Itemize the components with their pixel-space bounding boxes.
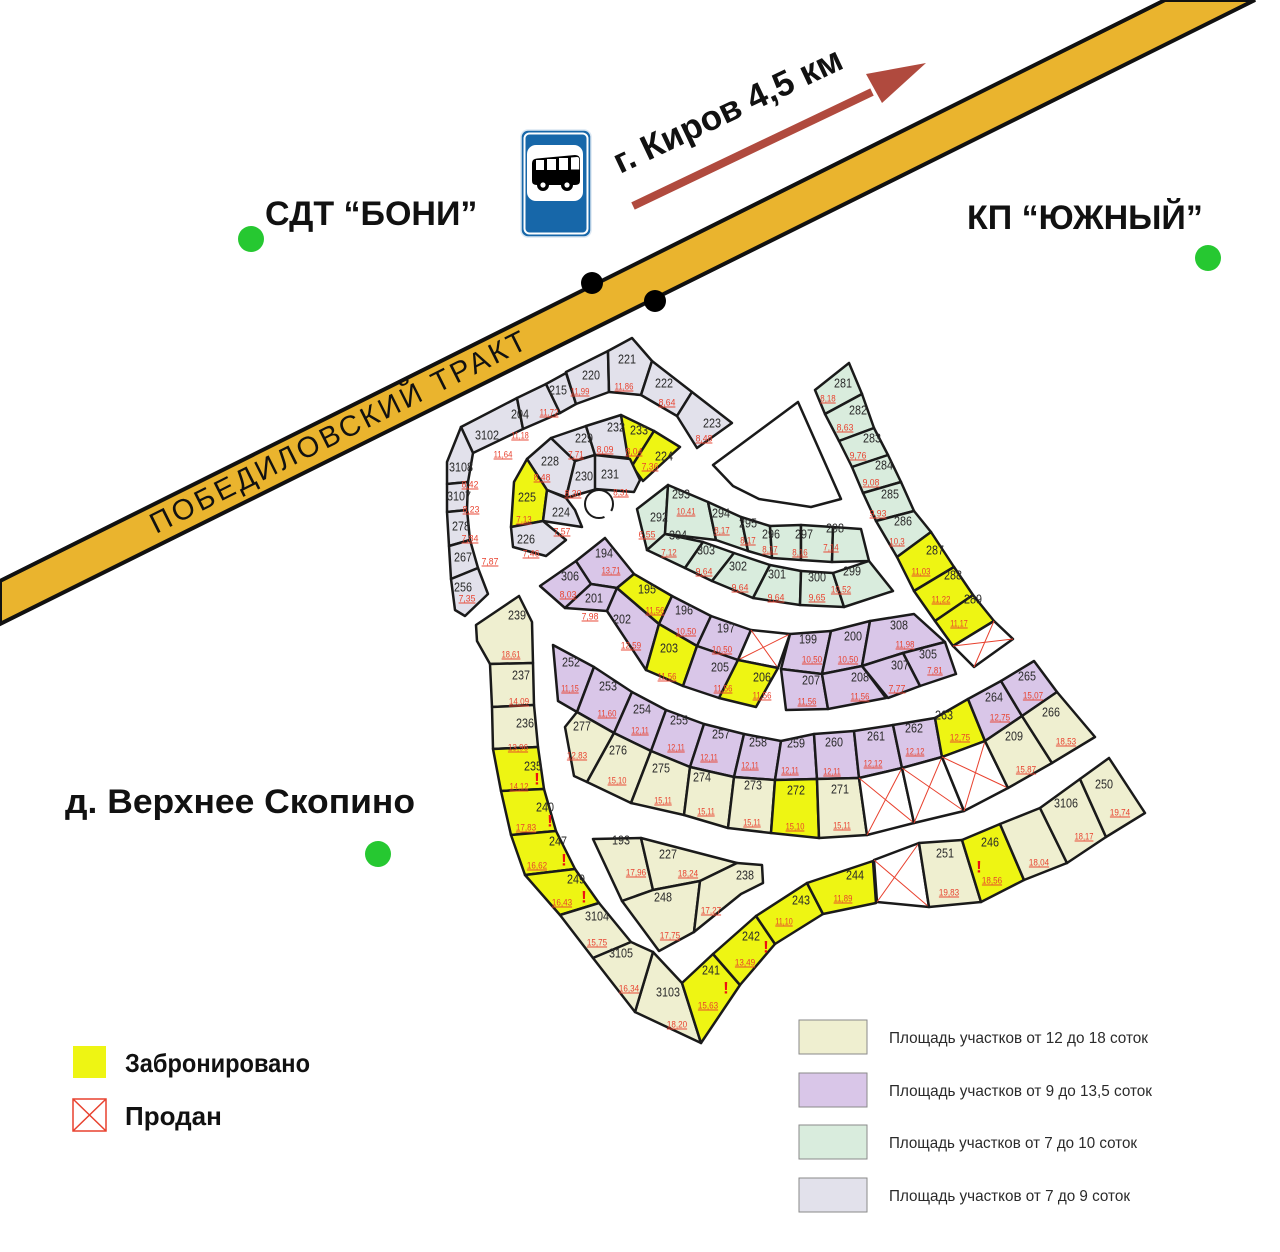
svg-text:12,12: 12,12 xyxy=(906,747,925,758)
svg-text:11,99: 11,99 xyxy=(571,387,590,398)
svg-text:239: 239 xyxy=(508,608,526,622)
svg-text:276: 276 xyxy=(609,743,627,757)
svg-text:204: 204 xyxy=(511,407,529,421)
svg-text:11,03: 11,03 xyxy=(912,567,931,578)
svg-text:18,53: 18,53 xyxy=(1056,737,1076,748)
svg-text:7,46: 7,46 xyxy=(523,549,540,560)
svg-text:Площадь участков от 9 до 13,5: Площадь участков от 9 до 13,5 соток xyxy=(889,1083,1153,1100)
svg-text:271: 271 xyxy=(831,782,849,796)
svg-text:11,56: 11,56 xyxy=(714,684,733,695)
svg-text:263: 263 xyxy=(935,708,953,722)
svg-text:12,59: 12,59 xyxy=(621,641,641,652)
svg-text:11,22: 11,22 xyxy=(932,595,951,606)
svg-text:12,11: 12,11 xyxy=(631,726,648,737)
svg-text:15,11: 15,11 xyxy=(697,807,714,818)
svg-text:282: 282 xyxy=(849,403,867,417)
svg-text:7,81: 7,81 xyxy=(927,666,942,677)
svg-text:8,48: 8,48 xyxy=(534,473,551,484)
svg-text:308: 308 xyxy=(890,618,908,632)
svg-text:15,11: 15,11 xyxy=(743,818,760,829)
svg-text:253: 253 xyxy=(599,679,617,693)
svg-text:!: ! xyxy=(534,769,540,788)
svg-text:244: 244 xyxy=(846,868,864,882)
svg-text:17,83: 17,83 xyxy=(516,823,536,834)
svg-text:200: 200 xyxy=(844,629,862,643)
svg-text:275: 275 xyxy=(652,761,670,775)
svg-text:18,04: 18,04 xyxy=(1029,858,1049,869)
svg-text:9,08: 9,08 xyxy=(863,478,880,489)
svg-text:8,03: 8,03 xyxy=(560,590,577,601)
svg-text:10,50: 10,50 xyxy=(712,645,732,656)
svg-text:18,56: 18,56 xyxy=(982,876,1002,887)
svg-text:16,34: 16,34 xyxy=(619,984,639,995)
svg-text:203: 203 xyxy=(660,641,678,655)
svg-text:7,84: 7,84 xyxy=(462,534,479,545)
svg-text:11,17: 11,17 xyxy=(950,619,967,630)
svg-text:9,76: 9,76 xyxy=(850,451,867,462)
svg-text:259: 259 xyxy=(787,736,805,750)
svg-text:256: 256 xyxy=(454,580,472,594)
svg-text:196: 196 xyxy=(675,603,693,617)
svg-text:231: 231 xyxy=(601,467,619,481)
svg-text:16,62: 16,62 xyxy=(527,861,547,872)
svg-text:17,75: 17,75 xyxy=(660,931,680,942)
svg-text:13,49: 13,49 xyxy=(735,958,755,969)
svg-text:193: 193 xyxy=(612,833,630,847)
svg-text:13,71: 13,71 xyxy=(602,566,621,577)
svg-text:10,50: 10,50 xyxy=(676,627,696,638)
svg-text:272: 272 xyxy=(787,783,805,797)
svg-text:255: 255 xyxy=(670,713,688,727)
svg-text:11,86: 11,86 xyxy=(615,382,634,393)
svg-text:11,98: 11,98 xyxy=(896,640,915,651)
svg-text:12,11: 12,11 xyxy=(667,743,684,754)
svg-text:11,10: 11,10 xyxy=(775,917,792,928)
svg-text:252: 252 xyxy=(562,655,580,669)
svg-text:14,09: 14,09 xyxy=(509,697,529,708)
svg-text:250: 250 xyxy=(1095,777,1113,791)
svg-text:261: 261 xyxy=(867,729,885,743)
svg-text:284: 284 xyxy=(875,458,893,472)
svg-text:246: 246 xyxy=(981,835,999,849)
svg-text:11,56: 11,56 xyxy=(851,692,870,703)
svg-text:249: 249 xyxy=(567,872,585,886)
svg-text:227: 227 xyxy=(659,847,677,861)
svg-text:11,56: 11,56 xyxy=(658,672,677,683)
svg-text:273: 273 xyxy=(744,778,762,792)
svg-text:11,15: 11,15 xyxy=(561,684,578,695)
svg-text:287: 287 xyxy=(926,543,944,557)
svg-text:241: 241 xyxy=(702,963,720,977)
svg-text:11,56: 11,56 xyxy=(798,697,817,708)
svg-text:12,11: 12,11 xyxy=(741,761,758,772)
svg-text:226: 226 xyxy=(517,532,535,546)
svg-text:3106: 3106 xyxy=(1054,796,1078,810)
svg-text:266: 266 xyxy=(1042,705,1060,719)
svg-text:18,61: 18,61 xyxy=(502,650,521,661)
svg-text:Площадь участков от 12 до 18 с: Площадь участков от 12 до 18 соток xyxy=(889,1030,1149,1047)
svg-text:10,3: 10,3 xyxy=(889,537,904,548)
svg-text:11,64: 11,64 xyxy=(494,450,513,461)
svg-text:15,11: 15,11 xyxy=(833,821,850,832)
svg-text:215: 215 xyxy=(549,383,567,397)
svg-text:7,35: 7,35 xyxy=(459,594,476,605)
svg-text:305: 305 xyxy=(919,647,937,661)
svg-text:8,09: 8,09 xyxy=(597,445,614,456)
svg-text:10,41: 10,41 xyxy=(677,507,696,518)
svg-text:304: 304 xyxy=(669,528,687,542)
svg-text:222: 222 xyxy=(655,376,673,390)
svg-text:199: 199 xyxy=(799,632,817,646)
svg-text:17,96: 17,96 xyxy=(626,868,646,879)
svg-text:Продан: Продан xyxy=(125,1101,222,1131)
svg-text:10,50: 10,50 xyxy=(802,655,822,666)
svg-text:254: 254 xyxy=(633,702,651,716)
svg-text:277: 277 xyxy=(573,719,591,733)
svg-text:225: 225 xyxy=(518,490,536,504)
svg-text:238: 238 xyxy=(736,868,754,882)
svg-text:9,64: 9,64 xyxy=(696,567,713,578)
svg-text:205: 205 xyxy=(711,660,729,674)
svg-text:257: 257 xyxy=(712,727,730,741)
svg-text:3108: 3108 xyxy=(449,460,473,474)
svg-text:12,12: 12,12 xyxy=(864,759,883,770)
svg-text:18,17: 18,17 xyxy=(1075,832,1094,843)
svg-text:7,87: 7,87 xyxy=(482,557,499,568)
svg-text:8,31: 8,31 xyxy=(613,488,628,499)
svg-text:8,17: 8,17 xyxy=(714,526,729,537)
svg-text:248: 248 xyxy=(654,890,672,904)
svg-text:15,10: 15,10 xyxy=(786,822,805,833)
svg-text:274: 274 xyxy=(693,770,711,784)
svg-text:260: 260 xyxy=(825,735,843,749)
svg-text:228: 228 xyxy=(541,454,559,468)
svg-text:14,12: 14,12 xyxy=(510,782,529,793)
svg-text:285: 285 xyxy=(881,487,899,501)
svg-text:Площадь участков от 7 до 10 со: Площадь участков от 7 до 10 соток xyxy=(889,1135,1138,1152)
svg-text:242: 242 xyxy=(742,929,760,943)
svg-text:8,64: 8,64 xyxy=(659,398,676,409)
svg-text:12,83: 12,83 xyxy=(567,751,587,762)
svg-text:299: 299 xyxy=(843,564,861,578)
svg-text:11,56: 11,56 xyxy=(753,691,772,702)
svg-text:236: 236 xyxy=(516,716,534,730)
svg-text:12,11: 12,11 xyxy=(823,767,840,778)
svg-text:7,77: 7,77 xyxy=(889,684,906,695)
svg-text:19,74: 19,74 xyxy=(1110,808,1130,819)
svg-text:Забронировано: Забронировано xyxy=(125,1048,310,1078)
svg-text:294: 294 xyxy=(712,506,730,520)
svg-text:8,18: 8,18 xyxy=(820,394,835,405)
svg-text:15,11: 15,11 xyxy=(654,796,671,807)
svg-text:251: 251 xyxy=(936,846,954,860)
svg-text:237: 237 xyxy=(512,668,530,682)
svg-text:10,50: 10,50 xyxy=(838,655,858,666)
svg-text:7,36: 7,36 xyxy=(642,462,659,473)
svg-text:15,75: 15,75 xyxy=(587,938,607,949)
svg-text:15,87: 15,87 xyxy=(1016,765,1036,776)
svg-text:3104: 3104 xyxy=(585,909,609,923)
svg-text:300: 300 xyxy=(808,570,826,584)
svg-text:8,17: 8,17 xyxy=(740,536,755,547)
svg-text:265: 265 xyxy=(1018,669,1036,683)
svg-text:11,56: 11,56 xyxy=(646,606,665,617)
svg-text:8,04: 8,04 xyxy=(626,447,643,458)
svg-text:18,24: 18,24 xyxy=(678,869,698,880)
svg-text:202: 202 xyxy=(613,612,631,626)
svg-text:18,20: 18,20 xyxy=(667,1020,687,1031)
svg-text:7,71: 7,71 xyxy=(568,450,583,461)
svg-text:12,75: 12,75 xyxy=(950,733,970,744)
svg-text:8,63: 8,63 xyxy=(837,423,854,434)
svg-text:303: 303 xyxy=(697,543,715,557)
svg-text:12,11: 12,11 xyxy=(781,766,798,777)
svg-text:224: 224 xyxy=(552,505,570,519)
svg-text:!: ! xyxy=(561,850,567,869)
svg-text:208: 208 xyxy=(851,670,869,684)
svg-text:СДТ “БОНИ”: СДТ “БОНИ” xyxy=(265,195,477,233)
svg-text:232: 232 xyxy=(607,420,625,434)
svg-text:11,72: 11,72 xyxy=(540,408,559,419)
svg-text:262: 262 xyxy=(905,721,923,735)
svg-text:286: 286 xyxy=(894,514,912,528)
svg-text:281: 281 xyxy=(834,376,852,390)
svg-text:!: ! xyxy=(723,978,729,997)
svg-text:297: 297 xyxy=(795,527,813,541)
svg-text:д. Верхнее Скопино: д. Верхнее Скопино xyxy=(65,783,415,821)
svg-text:КП “ЮЖНЫЙ”: КП “ЮЖНЫЙ” xyxy=(967,198,1203,237)
svg-text:!: ! xyxy=(547,811,553,830)
svg-text:19,83: 19,83 xyxy=(939,888,959,899)
svg-text:11,89: 11,89 xyxy=(834,894,853,905)
svg-text:!: ! xyxy=(976,857,982,876)
svg-text:11,18: 11,18 xyxy=(511,431,528,442)
svg-text:13,96: 13,96 xyxy=(508,743,528,754)
svg-text:9,93: 9,93 xyxy=(870,509,887,520)
svg-text:8,30: 8,30 xyxy=(565,489,582,500)
svg-text:258: 258 xyxy=(749,735,767,749)
svg-text:7,14: 7,14 xyxy=(823,543,838,554)
svg-text:Площадь участков от 7 до 9 сот: Площадь участков от 7 до 9 соток xyxy=(889,1188,1131,1205)
svg-text:3103: 3103 xyxy=(656,985,680,999)
svg-text:295: 295 xyxy=(739,516,757,530)
svg-text:207: 207 xyxy=(802,673,820,687)
svg-text:264: 264 xyxy=(985,690,1003,704)
svg-text:296: 296 xyxy=(762,527,780,541)
svg-text:15,63: 15,63 xyxy=(698,1001,718,1012)
svg-text:289: 289 xyxy=(964,592,982,606)
svg-text:292: 292 xyxy=(650,510,668,524)
svg-text:8,23: 8,23 xyxy=(463,505,480,516)
svg-text:9,65: 9,65 xyxy=(809,593,826,604)
svg-text:15,10: 15,10 xyxy=(608,776,627,787)
svg-text:6,55: 6,55 xyxy=(639,530,656,541)
svg-text:229: 229 xyxy=(575,431,593,445)
svg-text:17,27: 17,27 xyxy=(701,906,721,917)
svg-text:8,17: 8,17 xyxy=(762,545,777,556)
svg-text:209: 209 xyxy=(1005,729,1023,743)
svg-text:233: 233 xyxy=(630,423,648,437)
svg-text:194: 194 xyxy=(595,546,613,560)
svg-text:206: 206 xyxy=(753,670,771,684)
svg-text:247: 247 xyxy=(549,834,567,848)
svg-text:306: 306 xyxy=(561,569,579,583)
svg-text:9,64: 9,64 xyxy=(768,593,785,604)
svg-text:201: 201 xyxy=(585,591,603,605)
svg-text:220: 220 xyxy=(582,368,600,382)
svg-text:!: ! xyxy=(763,937,769,956)
svg-text:307: 307 xyxy=(891,658,909,672)
svg-text:7,57: 7,57 xyxy=(554,527,571,538)
svg-text:301: 301 xyxy=(768,567,786,581)
svg-text:8,16: 8,16 xyxy=(792,548,807,559)
svg-text:7,98: 7,98 xyxy=(582,612,599,623)
svg-text:298: 298 xyxy=(826,521,844,535)
svg-text:230: 230 xyxy=(575,469,593,483)
svg-text:221: 221 xyxy=(618,352,636,366)
svg-text:302: 302 xyxy=(729,559,747,573)
svg-text:283: 283 xyxy=(863,431,881,445)
svg-text:293: 293 xyxy=(672,487,690,501)
svg-text:3102: 3102 xyxy=(475,428,499,442)
svg-text:197: 197 xyxy=(717,621,735,635)
svg-text:7,13: 7,13 xyxy=(516,515,531,526)
svg-text:9,64: 9,64 xyxy=(732,583,749,594)
svg-text:16,43: 16,43 xyxy=(552,898,572,909)
svg-text:288: 288 xyxy=(944,568,962,582)
svg-text:8,48: 8,48 xyxy=(696,434,713,445)
svg-text:!: ! xyxy=(581,887,587,906)
svg-text:3105: 3105 xyxy=(609,946,633,960)
svg-text:11,60: 11,60 xyxy=(598,709,617,720)
svg-text:15,07: 15,07 xyxy=(1023,691,1043,702)
svg-text:12,75: 12,75 xyxy=(990,713,1010,724)
svg-text:267: 267 xyxy=(454,550,472,564)
svg-text:3107: 3107 xyxy=(447,489,471,503)
svg-text:10,52: 10,52 xyxy=(831,585,851,596)
svg-text:223: 223 xyxy=(703,416,721,430)
svg-text:12,11: 12,11 xyxy=(700,753,717,764)
svg-text:195: 195 xyxy=(638,582,656,596)
svg-text:243: 243 xyxy=(792,893,810,907)
svg-text:278: 278 xyxy=(452,519,470,533)
svg-text:7,12: 7,12 xyxy=(661,548,676,559)
